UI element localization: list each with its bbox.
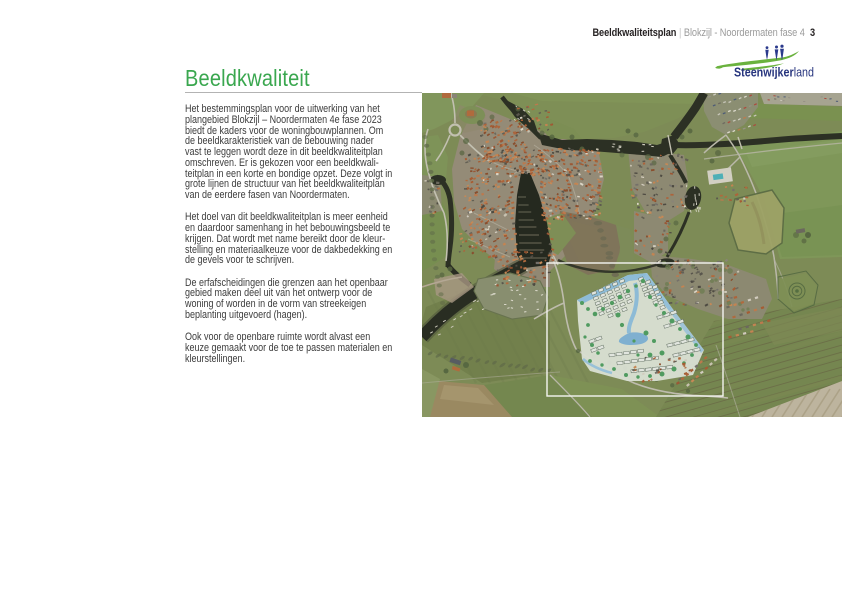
svg-text:Steenwijkerland: Steenwijkerland (734, 65, 814, 80)
